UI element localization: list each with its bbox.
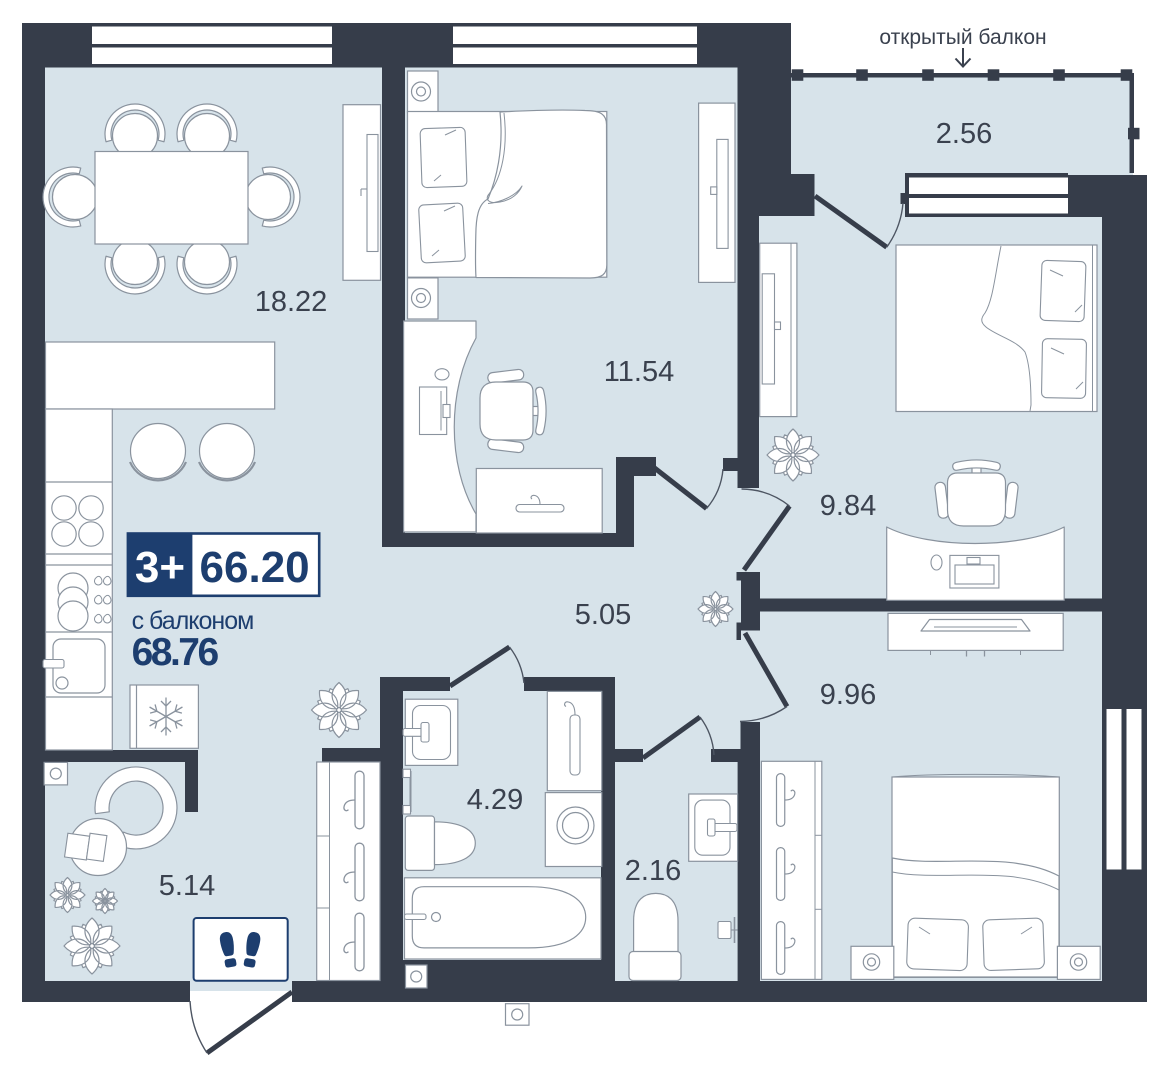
svg-text:5.14: 5.14 [159, 870, 215, 902]
svg-text:9.96: 9.96 [820, 679, 876, 711]
svg-text:открытый балкон: открытый балкон [879, 26, 1046, 49]
svg-text:9.84: 9.84 [820, 490, 876, 522]
svg-text:4.29: 4.29 [467, 784, 523, 816]
svg-text:2.56: 2.56 [936, 118, 992, 150]
svg-text:2.16: 2.16 [625, 855, 681, 887]
svg-text:11.54: 11.54 [604, 356, 674, 388]
svg-text:68.76: 68.76 [132, 631, 219, 674]
svg-text:5.05: 5.05 [575, 599, 631, 631]
svg-text:18.22: 18.22 [255, 286, 328, 318]
svg-text:3+: 3+ [135, 543, 185, 592]
svg-text:66.20: 66.20 [200, 543, 310, 592]
